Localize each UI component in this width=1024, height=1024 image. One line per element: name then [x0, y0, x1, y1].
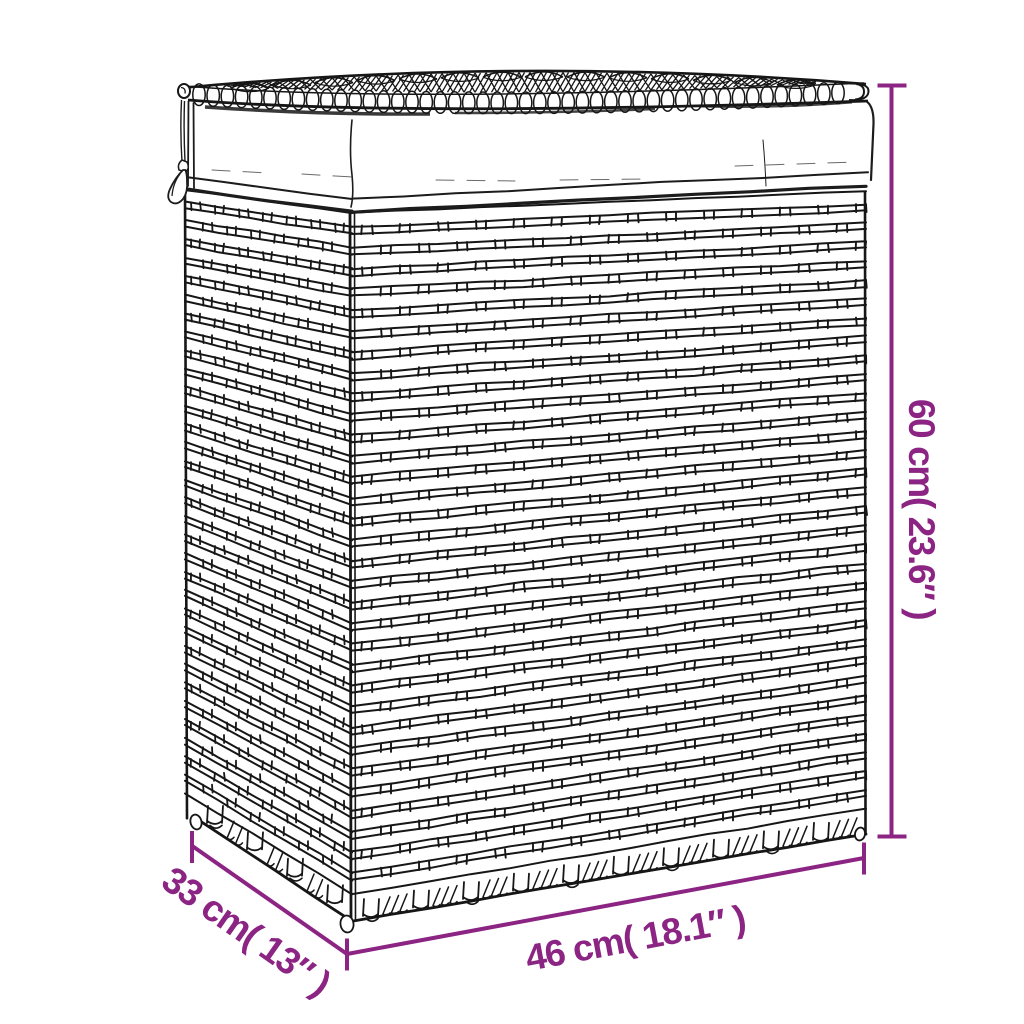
svg-text:46 cm( 18.1″ ): 46 cm( 18.1″ ): [522, 898, 748, 979]
svg-text:60 cm( 23.6″ ): 60 cm( 23.6″ ): [901, 399, 942, 619]
